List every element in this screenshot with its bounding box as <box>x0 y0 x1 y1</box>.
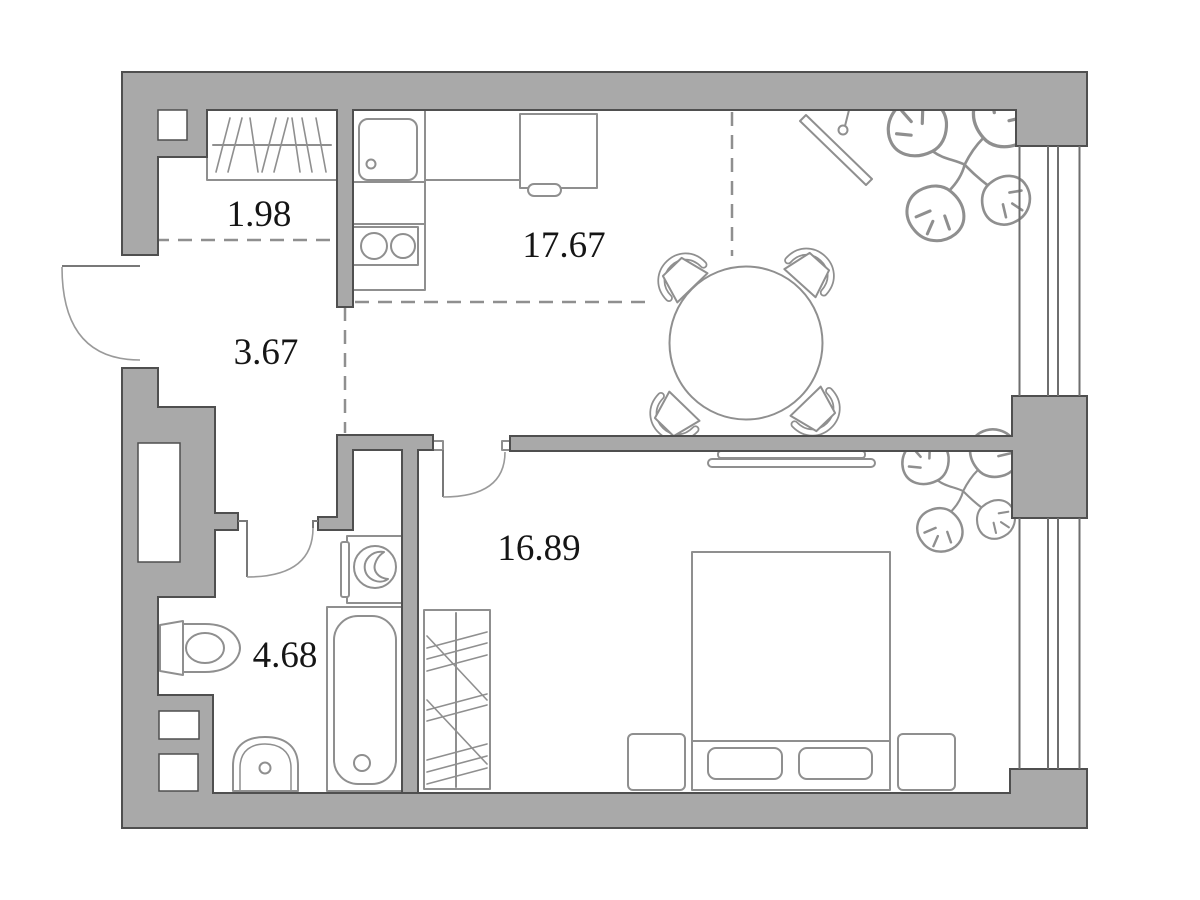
window-bedroom <box>1020 518 1080 769</box>
nightstand-left <box>628 734 685 790</box>
bathroom-door <box>238 521 318 577</box>
furniture-layer <box>160 74 1047 791</box>
window-living <box>1020 146 1080 396</box>
door-jamb-left <box>433 441 443 450</box>
washing-machine <box>341 536 403 603</box>
pillow-left <box>708 748 782 779</box>
floor-plan-page: 1.98 3.67 17.67 16.89 4.68 <box>0 0 1200 900</box>
bathtub <box>327 607 403 791</box>
bedroom-wardrobe <box>424 610 490 789</box>
shaft-hallway <box>138 443 180 562</box>
room-label-bedroom: 16.89 <box>497 528 580 569</box>
bedroom-door <box>443 450 505 497</box>
room-label-kitchen-living: 17.67 <box>522 225 605 266</box>
dining-table <box>670 267 823 420</box>
shaft-bath-upper <box>159 711 199 739</box>
bed <box>692 552 890 790</box>
kitchen-sink <box>359 119 417 180</box>
entry-door <box>62 266 140 360</box>
entry-closet-hangers <box>207 110 337 180</box>
shaft-top-left <box>158 110 187 140</box>
room-label-bathroom: 4.68 <box>253 635 318 676</box>
wall-tv-living <box>800 110 872 185</box>
nightstand-right <box>898 734 955 790</box>
pillow-right <box>799 748 872 779</box>
room-label-entry-closet: 1.98 <box>227 194 292 235</box>
refrigerator <box>520 114 597 196</box>
stove <box>353 227 418 265</box>
toilet <box>160 621 240 675</box>
washbasin <box>233 737 298 791</box>
bedroom-wall-tv <box>708 451 875 467</box>
shaft-bath-lower <box>159 754 198 791</box>
room-label-hallway: 3.67 <box>234 332 299 373</box>
floor-plan-canvas: 1.98 3.67 17.67 16.89 4.68 <box>0 0 1200 900</box>
